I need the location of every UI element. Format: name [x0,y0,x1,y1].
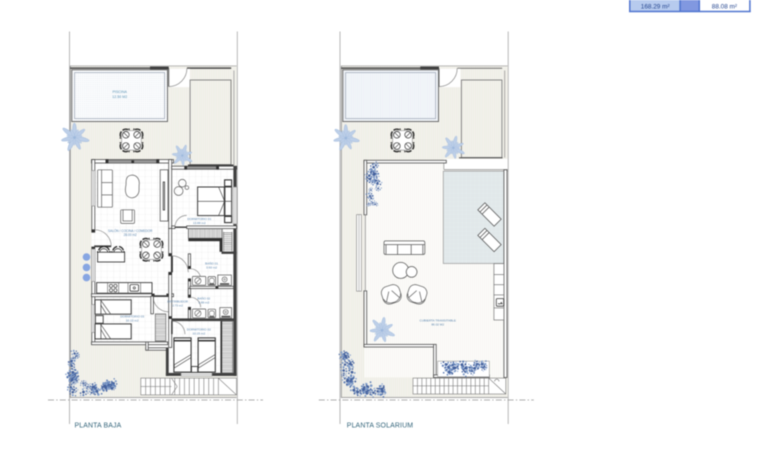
svg-text:3.69 m2: 3.69 m2 [198,301,209,305]
svg-text:28.00 m2: 28.00 m2 [124,233,137,237]
svg-text:PLANTA BAJA: PLANTA BAJA [75,422,122,429]
svg-text:PLANTA SOLARIUM: PLANTA SOLARIUM [347,422,413,429]
svg-text:86.02 M2: 86.02 M2 [431,323,444,327]
svg-text:168.29 m²: 168.29 m² [641,3,670,10]
svg-text:3.60 m2: 3.60 m2 [206,266,217,270]
svg-text:10.15 m2: 10.15 m2 [192,332,205,336]
svg-text:12.50 M2: 12.50 M2 [112,95,127,99]
svg-text:13.88 m2: 13.88 m2 [193,221,206,225]
svg-text:2.73 m2: 2.73 m2 [172,303,183,307]
svg-text:88.08 m²: 88.08 m² [712,3,737,10]
svg-text:10.13 m2: 10.13 m2 [126,319,139,323]
svg-text:PISCINA: PISCINA [113,90,128,94]
